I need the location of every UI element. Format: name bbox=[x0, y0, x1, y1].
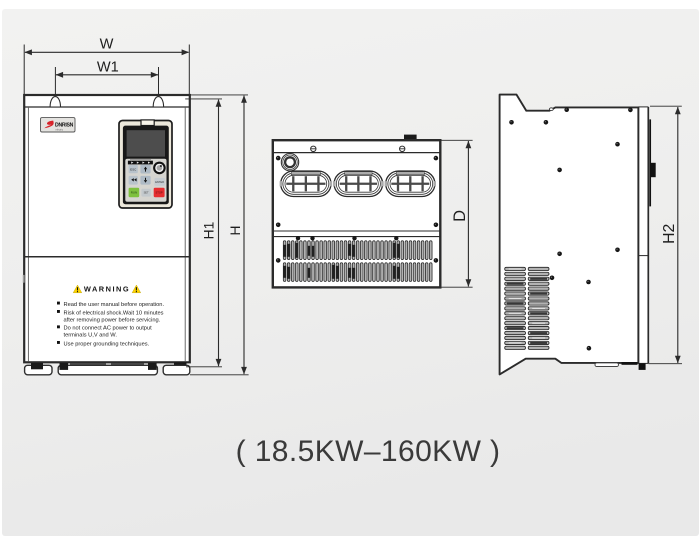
svg-text:STOP: STOP bbox=[155, 191, 162, 195]
svg-text:H: H bbox=[228, 226, 243, 236]
svg-text:W1: W1 bbox=[97, 59, 119, 75]
svg-text:ENTER: ENTER bbox=[155, 180, 164, 184]
svg-text:after removing power before se: after removing power before servicing. bbox=[64, 317, 161, 323]
svg-text:RUN: RUN bbox=[131, 191, 137, 195]
svg-text:( 18.5KW–160KW ): ( 18.5KW–160KW ) bbox=[236, 435, 501, 468]
svg-text:Do not connect AC power to out: Do not connect AC power to output bbox=[64, 326, 153, 332]
svg-text:electric: electric bbox=[56, 128, 64, 131]
svg-text:Read the user manual before op: Read the user manual before operation. bbox=[64, 302, 165, 308]
svg-text:H2: H2 bbox=[661, 224, 678, 244]
svg-text:terminals U,V and W.: terminals U,V and W. bbox=[64, 333, 118, 339]
svg-text:Use proper grounding technique: Use proper grounding techniques. bbox=[64, 341, 150, 347]
svg-text:ESC: ESC bbox=[130, 167, 137, 171]
svg-text:D: D bbox=[451, 210, 469, 222]
svg-text:SET: SET bbox=[144, 191, 149, 195]
svg-text:W: W bbox=[100, 37, 114, 53]
svg-text:WARNING: WARNING bbox=[84, 285, 130, 294]
svg-text:Risk of electrical shock.Wait: Risk of electrical shock.Wait 10 minutes bbox=[64, 310, 164, 316]
svg-text:H1: H1 bbox=[201, 222, 216, 240]
